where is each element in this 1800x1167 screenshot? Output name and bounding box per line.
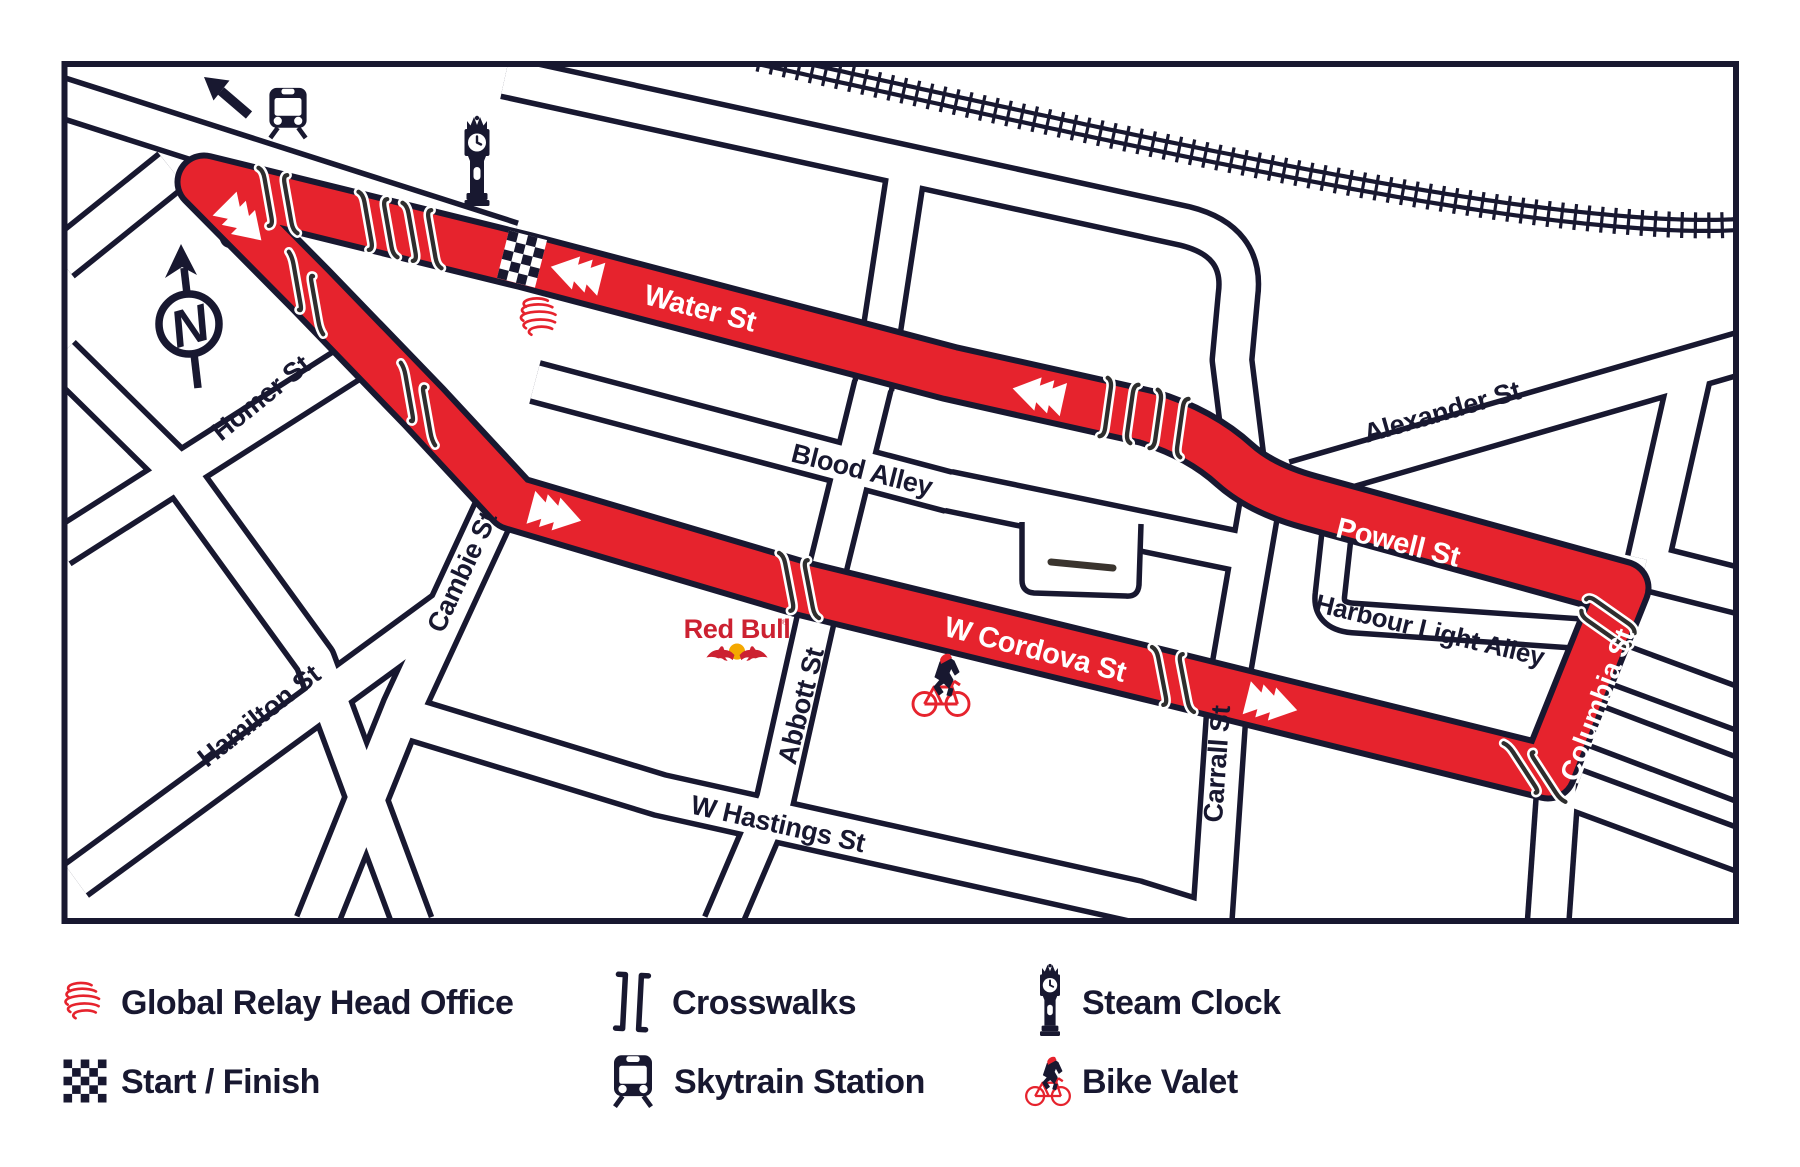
svg-text:Crosswalks: Crosswalks	[672, 984, 856, 1022]
svg-text:Global Relay Head Office: Global Relay Head Office	[121, 984, 513, 1022]
svg-text:Skytrain Station: Skytrain Station	[674, 1063, 925, 1101]
svg-text:Steam Clock: Steam Clock	[1082, 984, 1281, 1022]
svg-text:Start / Finish: Start / Finish	[121, 1063, 320, 1101]
svg-text:Bike Valet: Bike Valet	[1082, 1063, 1238, 1101]
svg-text:Red Bull: Red Bull	[684, 613, 791, 644]
svg-text:®: ®	[782, 617, 788, 626]
